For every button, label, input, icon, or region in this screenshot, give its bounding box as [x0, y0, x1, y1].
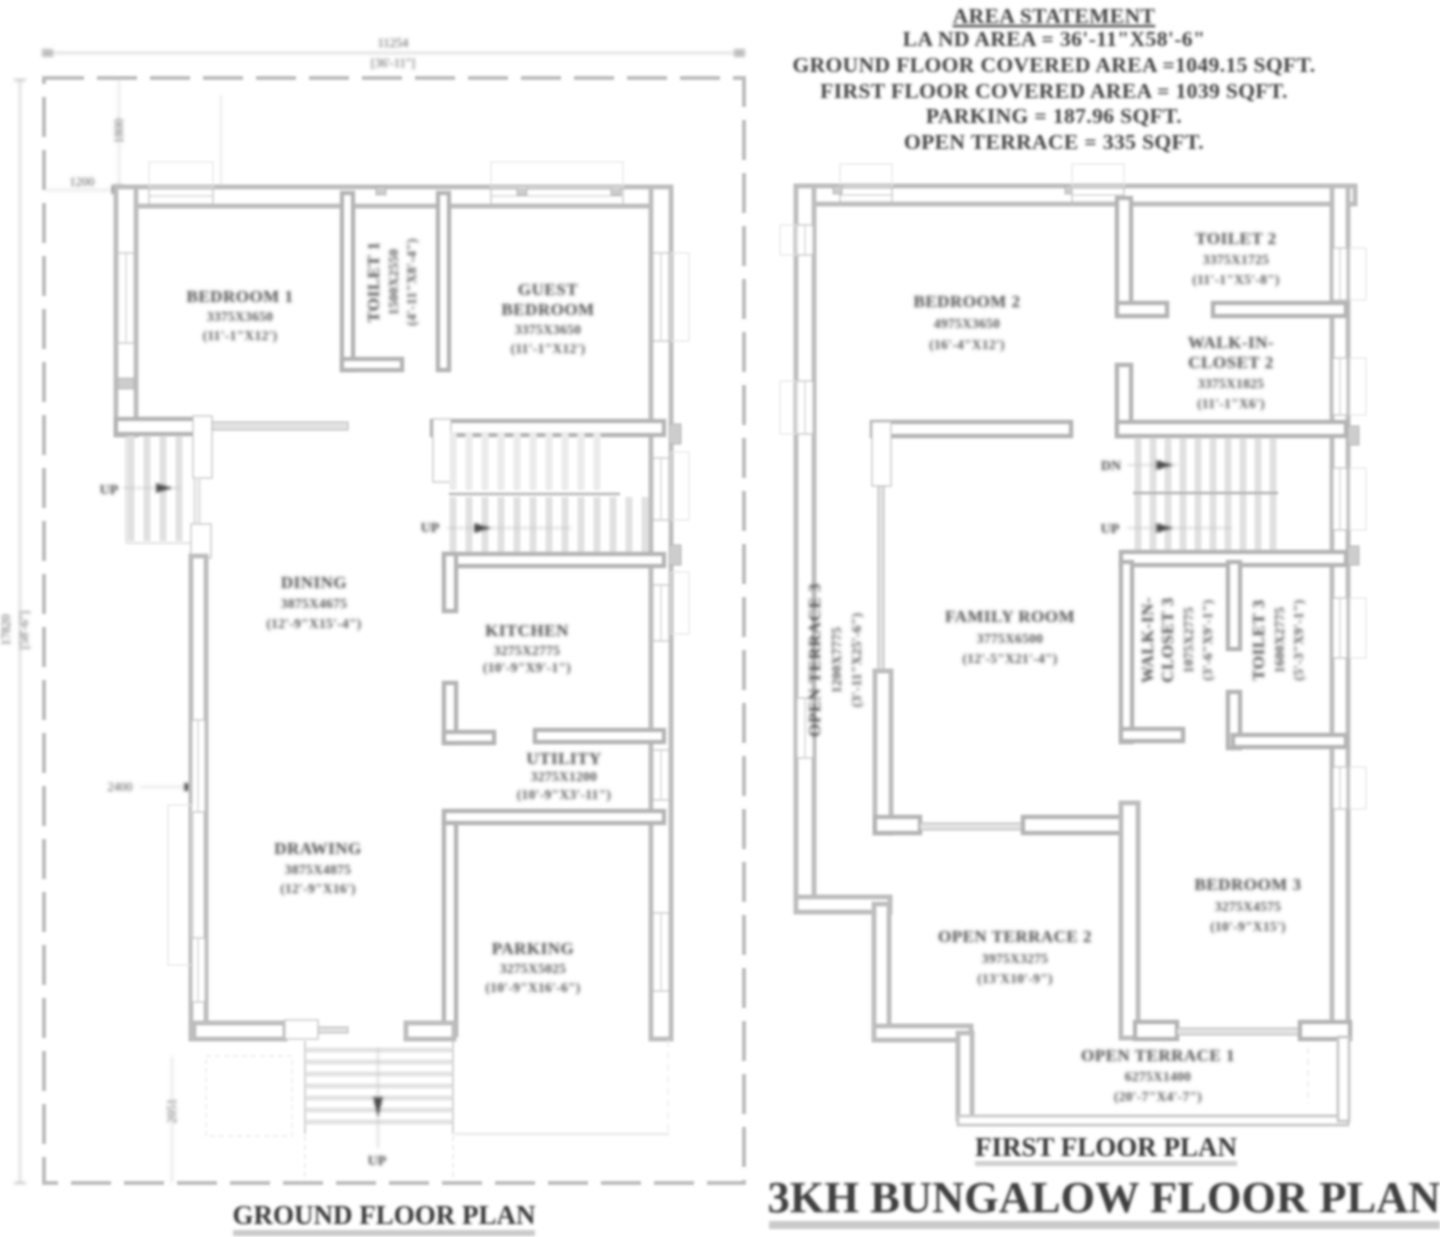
svg-text:(10'-9"X16'-6"): (10'-9"X16'-6"): [485, 980, 580, 995]
svg-text:(3'-6"X9'-1"): (3'-6"X9'-1"): [1200, 599, 1215, 680]
svg-text:1500X2550: 1500X2550: [386, 249, 401, 315]
svg-text:DN: DN: [1101, 459, 1121, 474]
svg-text:OPEN TERRACE 1: OPEN TERRACE 1: [1081, 1046, 1235, 1065]
svg-text:GUEST: GUEST: [518, 280, 578, 299]
svg-text:(3'-11"X25'-6"): (3'-11"X25'-6"): [849, 613, 864, 707]
svg-text:(10'-9"X15'): (10'-9"X15'): [1210, 919, 1286, 934]
svg-text:OPEN TERRACE = 335 SQFT.: OPEN TERRACE = 335 SQFT.: [904, 130, 1204, 154]
svg-text:FAMILY ROOM: FAMILY ROOM: [945, 607, 1075, 626]
svg-text:BEDROOM 3: BEDROOM 3: [1195, 875, 1302, 894]
svg-text:TOILET 3: TOILET 3: [1249, 599, 1268, 680]
svg-text:GROUND FLOOR PLAN: GROUND FLOOR PLAN: [233, 1200, 537, 1230]
svg-text:(12'-5"X21'-4"): (12'-5"X21'-4"): [962, 651, 1057, 666]
svg-text:(11'-1"X12'): (11'-1"X12'): [203, 328, 278, 343]
svg-text:FIRST FLOOR PLAN: FIRST FLOOR PLAN: [975, 1132, 1238, 1162]
svg-text:(10'-9"X3'-11"): (10'-9"X3'-11"): [517, 787, 611, 802]
svg-text:4975X3650: 4975X3650: [934, 316, 1000, 331]
svg-text:(13'X10'-9"): (13'X10'-9"): [977, 971, 1053, 986]
svg-text:3375X3650: 3375X3650: [207, 309, 273, 324]
svg-text:1800: 1800: [112, 119, 126, 144]
svg-text:GROUND FLOOR COVERED AREA =104: GROUND FLOOR COVERED AREA =1049.15 SQFT.: [793, 53, 1316, 77]
svg-text:[58'-6"]: [58'-6"]: [17, 611, 31, 650]
svg-text:WALK-IN-: WALK-IN-: [1188, 333, 1274, 352]
svg-text:1075X2775: 1075X2775: [1181, 607, 1196, 673]
svg-text:UP: UP: [100, 483, 119, 498]
svg-text:CLOSET 3: CLOSET 3: [1158, 597, 1177, 682]
svg-text:(20'-7"X4'-7"): (20'-7"X4'-7"): [1114, 1089, 1202, 1104]
svg-text:3275X5025: 3275X5025: [500, 961, 566, 976]
svg-text:3375X1825: 3375X1825: [1198, 376, 1264, 391]
svg-text:6275X1400: 6275X1400: [1125, 1069, 1191, 1084]
svg-text:1200X7775: 1200X7775: [829, 627, 844, 693]
svg-text:UP: UP: [1101, 522, 1120, 537]
svg-text:1600X2775: 1600X2775: [1272, 607, 1287, 673]
svg-text:KITCHEN: KITCHEN: [485, 621, 569, 640]
svg-text:(5'-3"X9'-1"): (5'-3"X9'-1"): [1291, 599, 1306, 680]
svg-text:3875X4875: 3875X4875: [285, 862, 351, 877]
svg-text:3275X1200: 3275X1200: [531, 769, 597, 784]
svg-text:(12'-9"X16'): (12'-9"X16'): [280, 881, 356, 896]
svg-text:DINING: DINING: [281, 573, 347, 592]
svg-text:LA ND AREA = 36'-11"X58'-6": LA ND AREA = 36'-11"X58'-6": [903, 27, 1206, 51]
svg-text:BEDROOM 2: BEDROOM 2: [914, 292, 1021, 311]
svg-text:UTILITY: UTILITY: [526, 749, 601, 768]
svg-text:3375X3650: 3375X3650: [515, 322, 581, 337]
svg-text:TOILET 2: TOILET 2: [1195, 229, 1276, 248]
svg-text:3275X2775: 3275X2775: [494, 643, 560, 658]
svg-text:1200: 1200: [70, 175, 95, 189]
svg-text:3275X4575: 3275X4575: [1215, 899, 1281, 914]
svg-text:3975X3275: 3975X3275: [982, 951, 1048, 966]
svg-text:3375X1725: 3375X1725: [1203, 252, 1269, 267]
svg-text:UP: UP: [421, 521, 440, 536]
svg-text:OPEN TERRACE 2: OPEN TERRACE 2: [938, 927, 1092, 946]
svg-text:2051: 2051: [165, 1099, 179, 1124]
svg-text:WALK-IN-: WALK-IN-: [1138, 597, 1157, 683]
svg-text:[36'-11"]: [36'-11"]: [371, 56, 415, 70]
svg-text:17820: 17820: [0, 614, 13, 645]
svg-text:UP: UP: [368, 1154, 387, 1169]
svg-text:PARKING: PARKING: [492, 939, 575, 958]
svg-text:BEDROOM: BEDROOM: [501, 300, 594, 319]
svg-text:FIRST FLOOR COVERED AREA = 1: FIRST FLOOR COVERED AREA = 1039 SQFT.: [820, 79, 1288, 103]
svg-text:BEDROOM 1: BEDROOM 1: [187, 287, 294, 306]
svg-text:TOILET 1: TOILET 1: [364, 241, 383, 322]
svg-text:(11'-1"X12'): (11'-1"X12'): [511, 341, 586, 356]
svg-text:(11'-1"X5'-8"): (11'-1"X5'-8"): [1192, 272, 1279, 287]
svg-text:CLOSET 2: CLOSET 2: [1188, 353, 1273, 372]
svg-text:(11'-1"X6'): (11'-1"X6'): [1197, 396, 1265, 411]
svg-text:2400: 2400: [108, 780, 133, 794]
svg-text:3875X4675: 3875X4675: [281, 596, 347, 611]
svg-text:(10'-9"X9'-1"): (10'-9"X9'-1"): [483, 660, 571, 675]
svg-text:3KH BUNGALOW FLOOR PLAN: 3KH BUNGALOW FLOOR PLAN: [768, 1172, 1440, 1222]
svg-text:OPEN TERRACE 3: OPEN TERRACE 3: [805, 583, 824, 737]
svg-text:(16'-4"X12'): (16'-4"X12'): [929, 337, 1005, 352]
svg-text:DRAWING: DRAWING: [274, 839, 362, 858]
svg-text:AREA STATEMENT: AREA STATEMENT: [953, 4, 1156, 28]
svg-text:(4'-11"X8'-4"): (4'-11"X8'-4"): [404, 238, 419, 325]
svg-text:3775X6500: 3775X6500: [977, 631, 1043, 646]
svg-text:11254: 11254: [378, 36, 410, 50]
svg-text:(12'-9"X15'-4"): (12'-9"X15'-4"): [266, 616, 361, 631]
svg-text:PARKING = 187.96 SQFT.: PARKING = 187.96 SQFT.: [926, 104, 1182, 128]
